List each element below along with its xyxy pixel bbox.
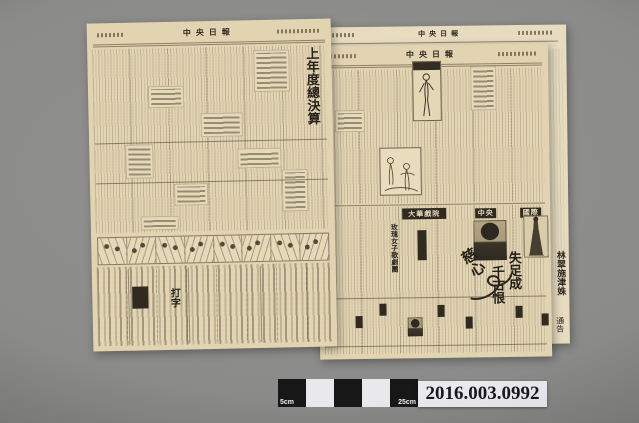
classified-ink-box-6: [515, 306, 522, 318]
headline-patch-5: [237, 148, 281, 169]
classified-portrait-photo: [408, 317, 423, 336]
cosmetics-ad-box: [412, 61, 442, 121]
right-mid-headline-patch: [335, 110, 365, 132]
cinema-central-text: 中央: [478, 208, 494, 218]
headline-patch-3: [200, 112, 242, 137]
cinema-label-central: 中央: [475, 208, 496, 218]
comic-panel: [98, 238, 127, 265]
theater-name: 大華戲院: [408, 208, 440, 218]
catalog-number: 2016.003.0992: [426, 383, 540, 405]
scale-square-white-2: [362, 379, 390, 407]
classified-ink-box-2: [356, 316, 363, 328]
scale-square-black-2: [334, 379, 362, 407]
scale-square-white-1: [306, 379, 334, 407]
brush-swirl-decoration: [469, 272, 513, 303]
under-header-mark-left: [328, 33, 354, 37]
under-edge-names: 林翠施津姝: [555, 251, 565, 296]
woman-figure-illustration: [413, 70, 441, 120]
under-header-mark-right: [518, 31, 552, 35]
headline-patch-7: [282, 169, 309, 212]
headline-patch-2: [148, 86, 184, 109]
photographic-scale-bar: 5cm 25cm: [278, 379, 418, 407]
comic-panel: [127, 237, 156, 264]
actress-costume-photo: [523, 215, 549, 257]
left-main-headline: 上年度總決算: [304, 47, 319, 125]
headline-patch-8: [141, 216, 179, 231]
comic-panel: [242, 235, 271, 262]
comic-strip: [97, 233, 330, 266]
under-edge-notice: 通告: [556, 317, 564, 333]
showtime-ink-pill: [417, 230, 426, 260]
theater-name-box: 大華戲院: [402, 208, 446, 220]
classified-ink-box-3: [379, 304, 386, 316]
headline-patch-1: [253, 49, 290, 92]
troupe-name: 玫瑰女子歌劇團: [390, 224, 398, 273]
left-header-mark-left: [97, 33, 125, 38]
catalog-number-plate: 2016.003.0992: [418, 381, 547, 407]
actress-dress: [528, 221, 544, 256]
classified-ink-box-4: [437, 305, 444, 317]
right-header-mark-right: [498, 52, 538, 57]
classified-ink-box-5: [466, 316, 473, 328]
comic-panel: [156, 237, 185, 264]
scale-label-25cm: 25cm: [398, 399, 416, 406]
classified-ink-box-7: [542, 313, 549, 325]
newspaper-sheet-right: 中央日報: [316, 43, 552, 359]
comic-panel: [271, 234, 300, 261]
comic-panel: [300, 234, 328, 261]
sketch-figures: [380, 148, 421, 195]
comic-panel: [185, 236, 214, 263]
typewriter-ad-text: 打字: [168, 288, 178, 308]
artifact-photo: 中央日報 林翠施津姝 通告 中央日報: [0, 0, 639, 423]
scale-label-5cm: 5cm: [280, 399, 294, 406]
logo-box: [132, 286, 148, 308]
headline-patch-4: [125, 144, 154, 179]
headline-patch-6: [174, 183, 208, 206]
scale-square-black-3: 25cm: [390, 379, 418, 407]
right-column-headline-patch: [470, 66, 497, 110]
comic-panel: [214, 235, 243, 262]
newspaper-sheet-left: 中央日報 上年度總決算 打字: [87, 18, 338, 351]
sketch-illustration-box: [379, 147, 422, 196]
scale-square-black-1: 5cm: [278, 379, 306, 407]
